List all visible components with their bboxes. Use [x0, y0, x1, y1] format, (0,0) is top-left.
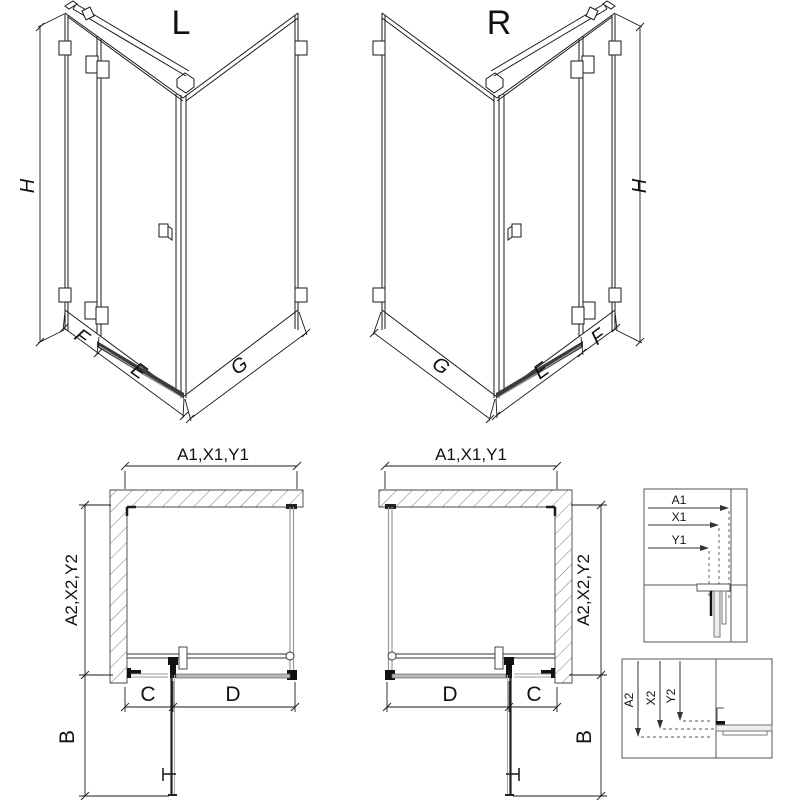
shower-enclosure-diagram: L H F E G — [0, 0, 800, 800]
door-handle — [159, 224, 172, 240]
label-a2-left: A2,X2,Y2 — [62, 554, 81, 626]
detail-label-a1: A1 — [672, 493, 687, 507]
door-open — [505, 673, 519, 795]
support-bar-plan — [388, 647, 555, 669]
arrowhead — [635, 728, 641, 737]
plan-view-right — [379, 462, 607, 800]
arrowhead — [710, 522, 719, 528]
threshold-plan — [176, 674, 290, 678]
arrowhead — [657, 720, 663, 729]
label-b-left: B — [56, 730, 79, 744]
view-title-right: R — [487, 4, 512, 42]
detail-label-a2: A2 — [622, 692, 636, 707]
plan-view-left — [79, 462, 303, 800]
arrowhead — [720, 505, 729, 511]
detail-label-x2: X2 — [644, 690, 658, 705]
door-handle — [508, 224, 521, 240]
detail-box-depth — [622, 659, 772, 758]
wall-profile-section — [697, 584, 730, 637]
dim-fe-left — [60, 312, 188, 420]
label-d-left: D — [225, 683, 240, 706]
dim-fe-right — [492, 312, 620, 420]
label-a1-right: A1,X1,Y1 — [435, 445, 507, 464]
label-c-right: C — [526, 683, 541, 706]
label-b-right: B — [573, 730, 596, 744]
detail-label-y2: Y2 — [664, 688, 678, 703]
label-a1-left: A1,X1,Y1 — [177, 445, 249, 464]
detail-label-x1: X1 — [672, 510, 687, 524]
iso-view-right — [370, 1, 644, 423]
dim-a1-right — [381, 462, 561, 489]
iso-view-left — [36, 1, 310, 423]
door-open — [163, 673, 177, 795]
support-bar-plan — [127, 647, 294, 669]
arrowhead — [700, 545, 709, 551]
wall-profile-section — [716, 708, 772, 735]
arrowhead — [677, 712, 683, 721]
detail-label-y1: Y1 — [672, 533, 687, 547]
support-bar — [65, 1, 189, 76]
label-h-right: H — [629, 178, 651, 193]
label-d-right: D — [442, 683, 457, 706]
view-title-left: L — [172, 4, 191, 42]
dim-a1-left — [121, 462, 301, 489]
detail-box-width — [644, 489, 747, 642]
label-a2-right: A2,X2,Y2 — [574, 554, 593, 626]
label-h-left: H — [17, 178, 39, 193]
technical-drawing-sheet: L H F E G — [0, 0, 800, 800]
label-c-left: C — [140, 683, 155, 706]
threshold-plan — [392, 674, 506, 678]
